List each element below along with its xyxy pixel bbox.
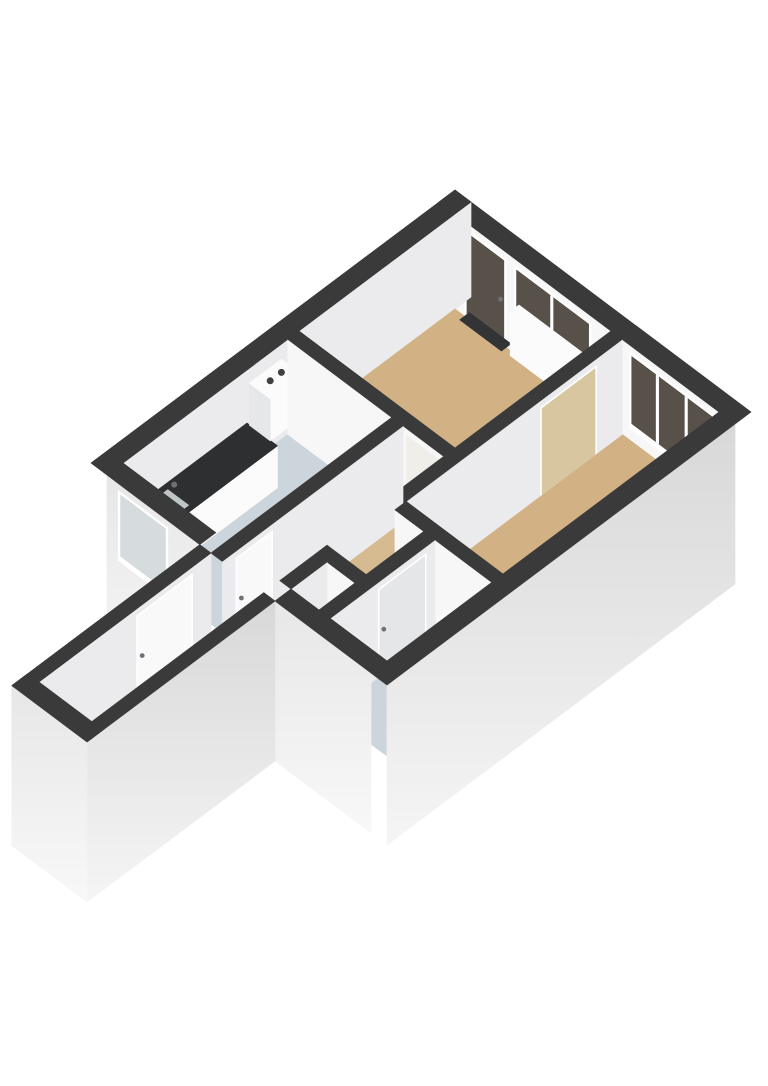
bathroom-door-handle-icon — [381, 627, 386, 632]
boiler-unit-dot — [278, 369, 285, 376]
balcony-glass-door-handle-icon — [498, 297, 503, 302]
floor-plan-page — [0, 0, 768, 1086]
kitchen-door-handle-icon — [239, 596, 244, 601]
bedroom-window-mullion-icon — [656, 375, 658, 444]
kitchen-counter-dot — [171, 482, 177, 488]
boiler-unit-dot — [267, 377, 274, 384]
front-door-handle-icon — [140, 653, 145, 658]
floorplan-3d-render — [0, 0, 768, 1086]
